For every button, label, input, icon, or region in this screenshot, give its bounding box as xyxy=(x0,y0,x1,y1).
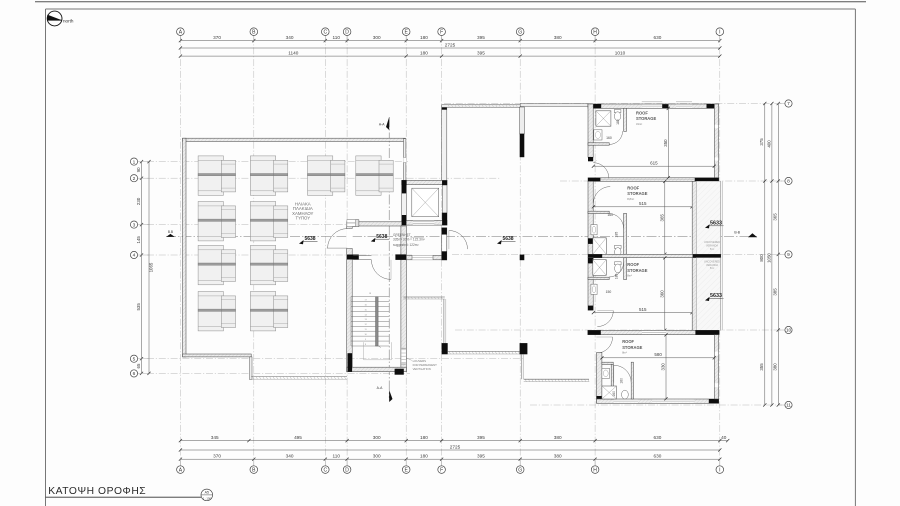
svg-text:H: H xyxy=(593,30,597,36)
svg-text:ROOF: ROOF xyxy=(627,186,639,191)
svg-text:370: 370 xyxy=(213,35,221,40)
svg-text:G: G xyxy=(518,467,522,473)
svg-text:5m²: 5m² xyxy=(710,248,714,251)
svg-text:STORAGE: STORAGE xyxy=(636,116,656,121)
svg-text:340: 340 xyxy=(286,454,294,459)
svg-text:300: 300 xyxy=(373,35,381,40)
svg-text:515: 515 xyxy=(639,307,647,312)
svg-text:395: 395 xyxy=(477,35,485,40)
svg-text:330: 330 xyxy=(661,363,666,371)
svg-text:ΚΑΤΟΨΗ ΟΡΟΦΗΣ: ΚΑΤΟΨΗ ΟΡΟΦΗΣ xyxy=(48,486,146,497)
svg-text:I: I xyxy=(719,467,720,473)
svg-text:F: F xyxy=(440,30,443,36)
svg-text:1 : 100: 1 : 100 xyxy=(203,497,212,501)
svg-text:G: G xyxy=(518,30,522,36)
svg-text:10: 10 xyxy=(786,328,792,334)
svg-text:D: D xyxy=(345,30,349,36)
svg-text:3: 3 xyxy=(133,222,136,228)
svg-text:H: H xyxy=(593,467,597,473)
svg-text:F: F xyxy=(440,467,443,473)
svg-text:395: 395 xyxy=(477,435,485,440)
svg-text:B-B: B-B xyxy=(734,230,740,234)
svg-text:385: 385 xyxy=(773,288,778,296)
svg-text:380: 380 xyxy=(554,454,562,459)
svg-text:185: 185 xyxy=(614,232,618,238)
svg-text:380: 380 xyxy=(554,435,562,440)
svg-text:ROOF: ROOF xyxy=(636,111,648,116)
svg-text:360: 360 xyxy=(659,290,664,298)
svg-text:180: 180 xyxy=(420,51,428,56)
svg-text:A-A: A-A xyxy=(379,123,385,127)
svg-text:800: 800 xyxy=(759,254,764,262)
svg-text:6: 6 xyxy=(133,371,136,377)
svg-text:630: 630 xyxy=(654,35,662,40)
svg-text:350: 350 xyxy=(663,139,668,147)
svg-text:355: 355 xyxy=(759,363,764,371)
svg-text:31m²: 31m² xyxy=(636,122,642,126)
svg-text:380: 380 xyxy=(554,35,562,40)
svg-text:9: 9 xyxy=(787,252,790,258)
svg-text:300: 300 xyxy=(373,435,381,440)
svg-text:515: 515 xyxy=(639,201,647,206)
svg-text:1140: 1140 xyxy=(288,51,298,56)
svg-text:615: 615 xyxy=(650,160,658,165)
svg-text:5: 5 xyxy=(133,356,136,362)
svg-text:STORAGE: STORAGE xyxy=(622,345,642,350)
svg-text:580: 580 xyxy=(654,352,662,357)
svg-text:STORAGE: STORAGE xyxy=(627,191,647,196)
svg-text:D: D xyxy=(345,467,349,473)
svg-text:365: 365 xyxy=(773,213,778,221)
svg-text:110: 110 xyxy=(332,35,340,40)
svg-text:300: 300 xyxy=(373,454,381,459)
svg-text:C: C xyxy=(323,467,327,473)
svg-text:8m²: 8m² xyxy=(627,274,632,278)
svg-text:I: I xyxy=(719,30,720,36)
svg-text:2725: 2725 xyxy=(450,444,461,449)
svg-text:8m²: 8m² xyxy=(622,351,627,355)
svg-text:395: 395 xyxy=(477,51,485,56)
svg-text:C: C xyxy=(323,30,327,36)
svg-text:11: 11 xyxy=(786,403,791,409)
svg-text:160: 160 xyxy=(606,136,612,140)
svg-text:180: 180 xyxy=(420,435,428,440)
svg-text:185: 185 xyxy=(614,273,618,279)
svg-text:340: 340 xyxy=(286,35,294,40)
svg-text:4: 4 xyxy=(133,253,136,259)
svg-text:ROOF: ROOF xyxy=(622,339,634,344)
svg-text:160: 160 xyxy=(612,391,616,397)
svg-text:495: 495 xyxy=(294,435,302,440)
svg-text:A5: A5 xyxy=(205,490,209,494)
svg-text:180: 180 xyxy=(420,35,428,40)
svg-text:8: 8 xyxy=(787,179,790,185)
svg-text:40: 40 xyxy=(721,435,727,440)
svg-text:A-A: A-A xyxy=(377,386,383,390)
svg-text:380: 380 xyxy=(773,363,778,371)
svg-text:400: 400 xyxy=(766,140,771,148)
svg-text:ΤΥΠΟΥ: ΤΥΠΟΥ xyxy=(295,216,310,221)
svg-text:395: 395 xyxy=(477,454,485,459)
svg-text:145: 145 xyxy=(136,236,141,244)
svg-text:535: 535 xyxy=(136,303,141,311)
svg-text:180: 180 xyxy=(420,454,428,459)
svg-text:65: 65 xyxy=(136,363,141,368)
svg-text:north: north xyxy=(63,18,74,23)
svg-text:VENTILATION: VENTILATION xyxy=(413,367,431,371)
svg-text:230: 230 xyxy=(136,197,141,205)
svg-text:335m² 33% = 122.3m²: 335m² 33% = 122.3m² xyxy=(393,238,425,242)
svg-text:630: 630 xyxy=(654,454,662,459)
svg-text:8,8m²: 8,8m² xyxy=(627,197,634,201)
svg-text:5m²: 5m² xyxy=(710,267,714,270)
svg-text:160: 160 xyxy=(620,378,624,384)
svg-text:150: 150 xyxy=(606,290,612,294)
svg-text:160: 160 xyxy=(607,213,613,217)
svg-text:1010: 1010 xyxy=(615,51,626,56)
svg-text:1065: 1065 xyxy=(148,262,153,272)
svg-text:2725: 2725 xyxy=(445,42,456,47)
svg-text:375: 375 xyxy=(759,138,764,146)
svg-text:345: 345 xyxy=(211,435,219,440)
svg-text:180: 180 xyxy=(616,119,620,125)
svg-text:2: 2 xyxy=(133,176,136,182)
svg-text:110: 110 xyxy=(332,454,340,459)
svg-text:B.B: B.B xyxy=(168,230,173,234)
svg-text:370: 370 xyxy=(213,454,221,459)
svg-text:suggested: 122m²: suggested: 122m² xyxy=(393,243,419,247)
svg-text:365: 365 xyxy=(659,214,664,222)
svg-text:90: 90 xyxy=(136,167,141,172)
svg-text:630: 630 xyxy=(654,435,662,440)
svg-text:7: 7 xyxy=(787,101,790,107)
svg-text:ROOF: ROOF xyxy=(627,262,639,267)
svg-text:1: 1 xyxy=(133,159,136,165)
svg-text:STORAGE: STORAGE xyxy=(627,268,647,273)
svg-text:GREENHET: GREENHET xyxy=(393,233,411,237)
svg-text:1050: 1050 xyxy=(766,253,771,263)
